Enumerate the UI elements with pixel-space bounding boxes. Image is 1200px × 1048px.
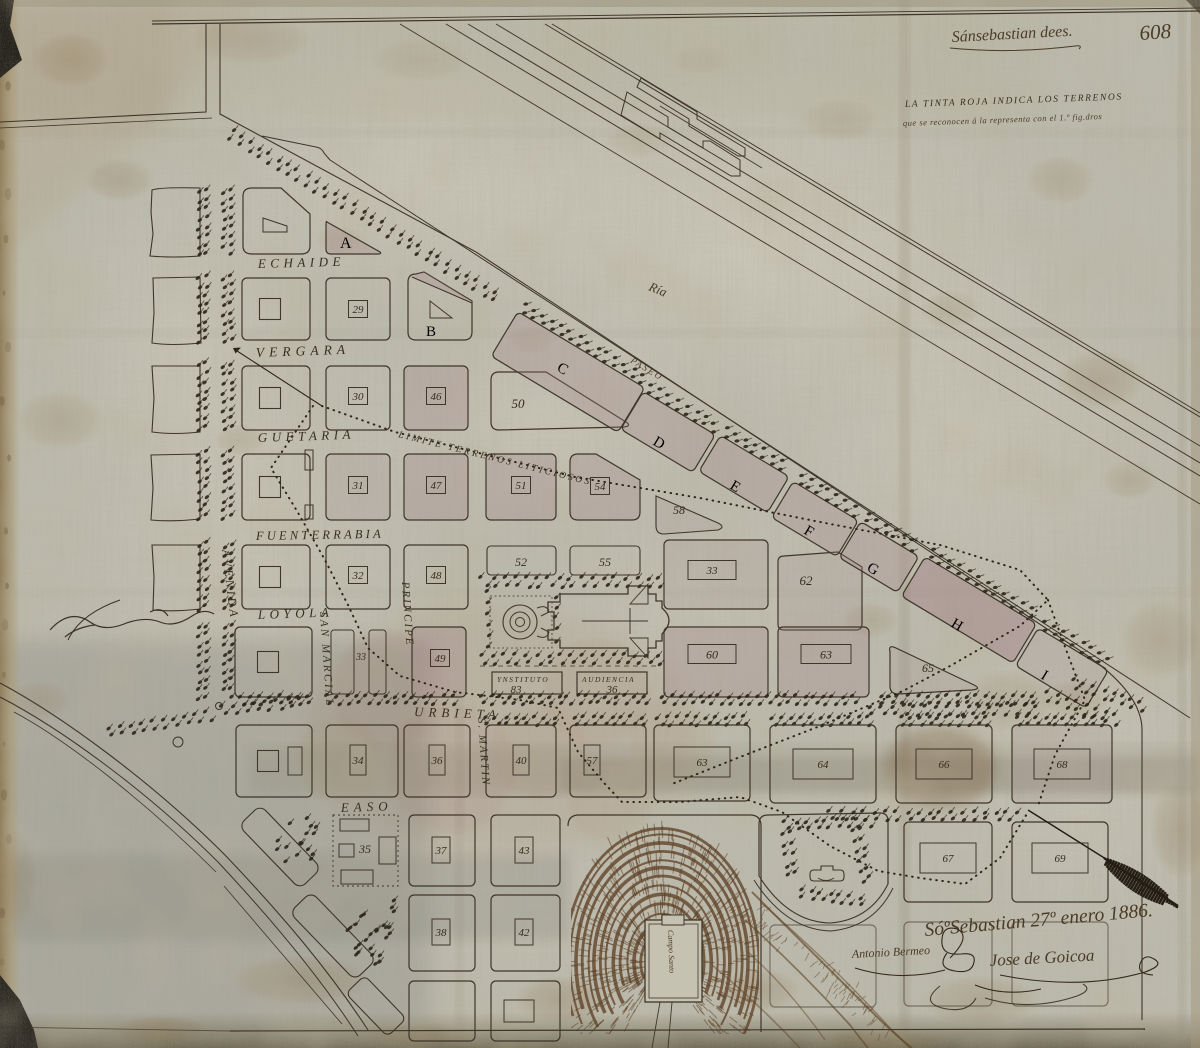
svg-text:ECHAIDE: ECHAIDE <box>257 254 345 271</box>
svg-text:EASO: EASO <box>340 798 393 815</box>
svg-text:35: 35 <box>358 842 371 856</box>
svg-text:52: 52 <box>515 555 527 569</box>
svg-text:que se reconocen á la represen: que se reconocen á la representa con el … <box>903 111 1103 128</box>
svg-text:42: 42 <box>519 927 531 939</box>
svg-text:66: 66 <box>939 759 951 771</box>
svg-text:AUDIENCIA: AUDIENCIA <box>581 675 635 684</box>
svg-text:49: 49 <box>435 653 447 665</box>
svg-text:YNSTITUTO: YNSTITUTO <box>497 675 549 684</box>
svg-text:67: 67 <box>943 853 955 865</box>
svg-text:50: 50 <box>512 396 526 411</box>
svg-text:608: 608 <box>1139 19 1173 45</box>
svg-text:34: 34 <box>352 755 365 767</box>
svg-text:Campo Santo: Campo Santo <box>666 930 677 974</box>
svg-text:Ría: Ría <box>646 278 670 299</box>
svg-text:55: 55 <box>599 555 611 569</box>
svg-text:GUETARIA: GUETARIA <box>258 427 356 445</box>
svg-text:37: 37 <box>435 845 448 857</box>
svg-text:32: 32 <box>352 570 365 582</box>
svg-text:30: 30 <box>352 391 365 403</box>
svg-text:58: 58 <box>673 503 685 517</box>
svg-text:31: 31 <box>352 480 364 492</box>
svg-text:SAN MARCIAL: SAN MARCIAL <box>317 611 336 708</box>
svg-text:51: 51 <box>516 480 527 492</box>
svg-text:33: 33 <box>706 565 719 577</box>
svg-text:Jose de Goicoa: Jose de Goicoa <box>989 946 1095 970</box>
svg-text:68: 68 <box>1057 759 1069 771</box>
svg-text:48: 48 <box>431 570 443 582</box>
svg-text:S. MARTIN: S. MARTIN <box>475 717 492 786</box>
svg-text:36: 36 <box>431 755 444 767</box>
svg-text:FUENTERRABIA: FUENTERRABIA <box>255 527 384 543</box>
svg-text:Antonio Bermeo: Antonio Bermeo <box>850 943 930 961</box>
svg-text:33: 33 <box>355 652 366 663</box>
svg-text:PRINCIPE: PRINCIPE <box>399 580 416 647</box>
svg-text:43: 43 <box>519 845 531 857</box>
svg-text:64: 64 <box>818 759 830 771</box>
svg-text:46: 46 <box>431 391 443 403</box>
svg-text:29: 29 <box>353 304 365 316</box>
svg-text:47: 47 <box>431 480 443 492</box>
svg-text:60: 60 <box>706 647 718 661</box>
svg-text:Sánsebastian dees.: Sánsebastian dees. <box>951 23 1073 46</box>
svg-text:B: B <box>426 324 436 340</box>
svg-text:A: A <box>340 235 352 252</box>
svg-text:38: 38 <box>435 927 448 939</box>
svg-text:40: 40 <box>516 755 528 767</box>
svg-text:VERGARA: VERGARA <box>256 342 351 360</box>
svg-text:AVENIDA: AVENIDA <box>219 548 242 621</box>
svg-text:63: 63 <box>820 647 832 661</box>
svg-text:69: 69 <box>1055 853 1067 865</box>
svg-text:62: 62 <box>800 573 814 588</box>
svg-text:SóºSebastian 27º enero 1886.: SóºSebastian 27º enero 1886. <box>924 900 1154 941</box>
svg-text:65: 65 <box>922 661 934 675</box>
svg-text:63: 63 <box>697 757 709 769</box>
svg-text:LA TINTA ROJA INDICA LOS TERRE: LA TINTA ROJA INDICA LOS TERRENOS <box>904 92 1123 110</box>
